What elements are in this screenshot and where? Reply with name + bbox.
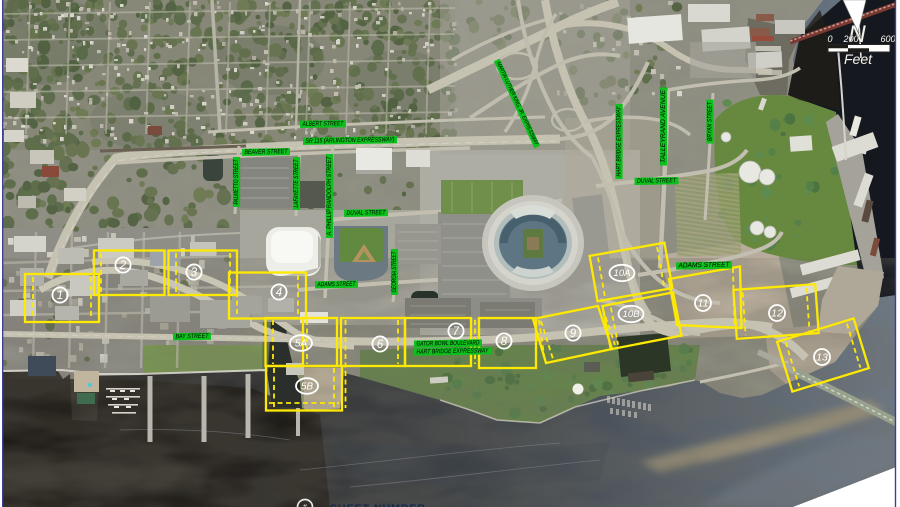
svg-text:10B: 10B <box>623 309 641 320</box>
svg-text:13: 13 <box>816 352 828 364</box>
svg-text:SHEET NUMBER: SHEET NUMBER <box>330 503 426 507</box>
svg-text:5B: 5B <box>301 381 314 392</box>
svg-text:0: 0 <box>827 34 832 44</box>
svg-text:600: 600 <box>880 34 895 44</box>
svg-text:10A: 10A <box>614 268 631 279</box>
svg-text:BEAVER STREET: BEAVER STREET <box>244 148 288 156</box>
svg-text:ALBERT STREET: ALBERT STREET <box>302 120 345 128</box>
svg-text:8: 8 <box>501 336 508 348</box>
svg-text:ADAMS STREET: ADAMS STREET <box>678 262 731 270</box>
svg-text:PALMETTO STREET: PALMETTO STREET <box>233 159 240 205</box>
svg-text:LAFAYETTE STREET: LAFAYETTE STREET <box>293 159 300 208</box>
svg-text:4: 4 <box>276 287 282 299</box>
svg-text:1: 1 <box>57 290 63 302</box>
svg-text:GATOR BOWL BOULEVARD: GATOR BOWL BOULEVARD <box>416 339 479 347</box>
svg-text:9: 9 <box>570 328 577 340</box>
svg-text:DUVAL STREET: DUVAL STREET <box>637 177 677 185</box>
svg-text:2: 2 <box>119 260 127 272</box>
svg-text:200: 200 <box>842 34 858 44</box>
svg-text:BAY STREET: BAY STREET <box>175 333 209 341</box>
svg-text:BRYAN STREET: BRYAN STREET <box>707 101 714 141</box>
svg-text:7: 7 <box>453 326 460 338</box>
svg-text:DUVAL STREET: DUVAL STREET <box>346 209 386 217</box>
svg-text:3: 3 <box>191 267 198 279</box>
svg-text:HART BRIDGE EXPRESSWAY: HART BRIDGE EXPRESSWAY <box>616 106 623 177</box>
svg-text:6: 6 <box>377 339 384 351</box>
svg-text:ADAMS STREET: ADAMS STREET <box>317 281 357 289</box>
svg-text:A. PHILLIP RANDOLPH STREET: A. PHILLIP RANDOLPH STREET <box>326 156 333 237</box>
svg-text:GEORGIA STREET: GEORGIA STREET <box>391 251 398 293</box>
svg-text:12: 12 <box>771 308 783 320</box>
svg-text:TALLEYRAND AVENUE: TALLEYRAND AVENUE <box>660 90 667 163</box>
svg-text:11: 11 <box>698 298 709 310</box>
svg-text:HART BRIDGE EXPRESSWAY: HART BRIDGE EXPRESSWAY <box>416 347 489 355</box>
svg-text:5A: 5A <box>295 338 308 349</box>
svg-text:Feet: Feet <box>844 51 873 67</box>
